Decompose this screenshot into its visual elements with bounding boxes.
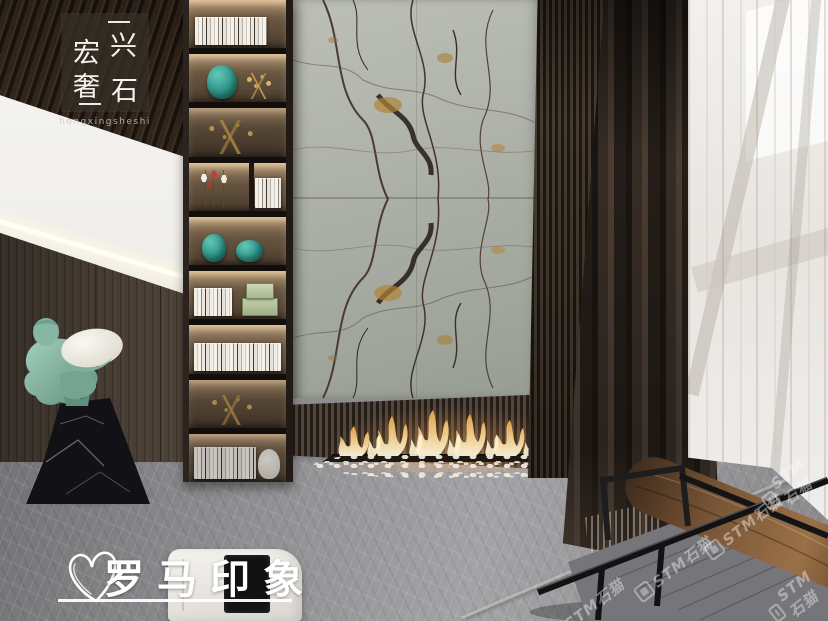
teal-figure-sculpture bbox=[8, 312, 158, 510]
teal-vase bbox=[236, 240, 263, 262]
shelf-cell-vase bbox=[189, 54, 286, 102]
shelf-cell-books bbox=[189, 0, 286, 48]
marble-veining bbox=[293, 0, 540, 398]
shelf-cell-books-row bbox=[189, 325, 286, 373]
logo-char: 宏 bbox=[73, 40, 100, 67]
green-box-decor bbox=[246, 283, 274, 299]
logo-dash-decor bbox=[79, 103, 101, 105]
shelf-cell-leaves bbox=[189, 380, 286, 428]
books-decor bbox=[194, 288, 232, 316]
teal-vase bbox=[207, 65, 237, 99]
green-box-decor bbox=[242, 298, 278, 316]
white-ornament bbox=[258, 449, 280, 479]
gold-branch-decor bbox=[199, 120, 263, 154]
gold-leaves-decor bbox=[203, 395, 261, 425]
logo-dash-decor bbox=[108, 21, 130, 23]
gold-branch-decor bbox=[243, 73, 275, 99]
shelf-cell-books-boxes bbox=[189, 271, 286, 319]
caption-underline bbox=[58, 599, 292, 602]
bookshelf bbox=[183, 0, 293, 482]
caption-title: 罗马印象 bbox=[104, 547, 316, 605]
shelf-cell-flowers bbox=[189, 163, 286, 211]
marble-feature-wall bbox=[293, 0, 540, 398]
window-frame-bar bbox=[691, 204, 828, 292]
flower-decor bbox=[197, 170, 231, 208]
books-decor bbox=[195, 17, 267, 45]
shelf-cell-vases bbox=[189, 217, 286, 265]
books-decor bbox=[194, 447, 256, 479]
brand-logo-badge: 宏 兴 奢 石 bbox=[62, 14, 148, 111]
books-decor bbox=[255, 178, 281, 208]
black-marble-pedestal bbox=[26, 398, 150, 504]
books-decor bbox=[194, 343, 281, 371]
interior-render-scene: 宏 兴 奢 石 hongxingsheshi 罗马印象 STM石猫 STM石猫 … bbox=[0, 0, 828, 621]
shelf-divider bbox=[249, 163, 254, 211]
teal-vase bbox=[202, 234, 226, 262]
logo-char: 兴 bbox=[110, 33, 137, 60]
logo-romanized-text: hongxingsheshi bbox=[45, 117, 165, 127]
logo-char: 石 bbox=[111, 78, 138, 105]
logo-char: 奢 bbox=[73, 74, 100, 101]
shelf-cell-branch bbox=[189, 108, 286, 156]
shelf-cell-books-bottom bbox=[189, 434, 286, 482]
